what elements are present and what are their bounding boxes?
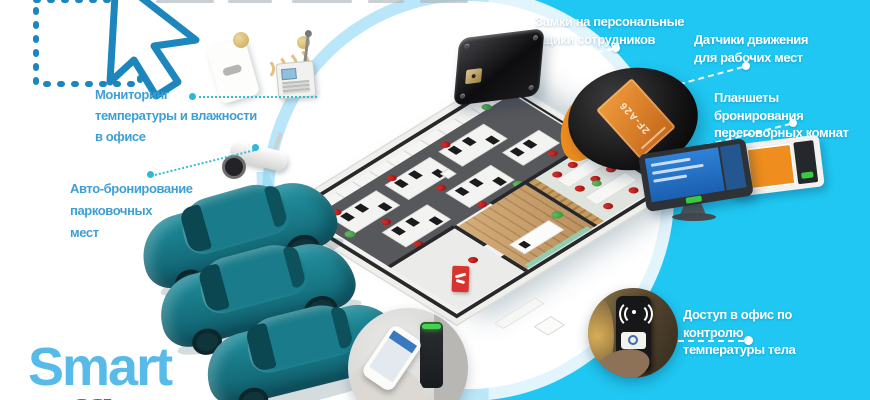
smart-office-infographic: 2F-A26 bbox=[0, 0, 870, 400]
cropped-title-remnant bbox=[420, 0, 468, 3]
callout-parking: Авто-бронирование парковочных мест bbox=[70, 178, 230, 244]
sensor-logger bbox=[276, 60, 317, 99]
connector-line bbox=[199, 96, 317, 98]
company-logo-sign bbox=[452, 266, 470, 293]
callout-access: Доступ в офис по контролю температуры те… bbox=[683, 306, 853, 359]
cropped-title-remnant bbox=[368, 0, 404, 3]
cropped-title-remnant bbox=[292, 0, 352, 3]
electronic-lock-icon bbox=[450, 26, 550, 110]
connector-dot bbox=[742, 62, 750, 70]
callout-monitoring: Мониторинг температуры и влажности в офи… bbox=[95, 84, 275, 147]
callout-locks: Замки на персональные ящики сотрудников bbox=[535, 13, 705, 48]
gold-coin bbox=[233, 32, 249, 48]
connector-dot bbox=[744, 336, 753, 345]
logo-office: Office bbox=[28, 389, 169, 400]
cropped-title-remnant bbox=[228, 0, 272, 3]
callout-tablets: Планшеты бронирования переговорных комна… bbox=[714, 89, 864, 142]
callout-motion: Датчики движения для рабочих мест bbox=[694, 31, 834, 66]
motion-sensor-model-label: 2F-A26 bbox=[611, 91, 659, 143]
connector-dot bbox=[252, 144, 259, 151]
connector-dot bbox=[147, 171, 154, 178]
office-chair bbox=[466, 256, 480, 265]
nfc-access-reader-icon bbox=[588, 288, 678, 378]
connector-dot bbox=[612, 44, 620, 52]
connector-dot bbox=[189, 93, 196, 100]
booking-tablet-icon bbox=[640, 138, 830, 228]
